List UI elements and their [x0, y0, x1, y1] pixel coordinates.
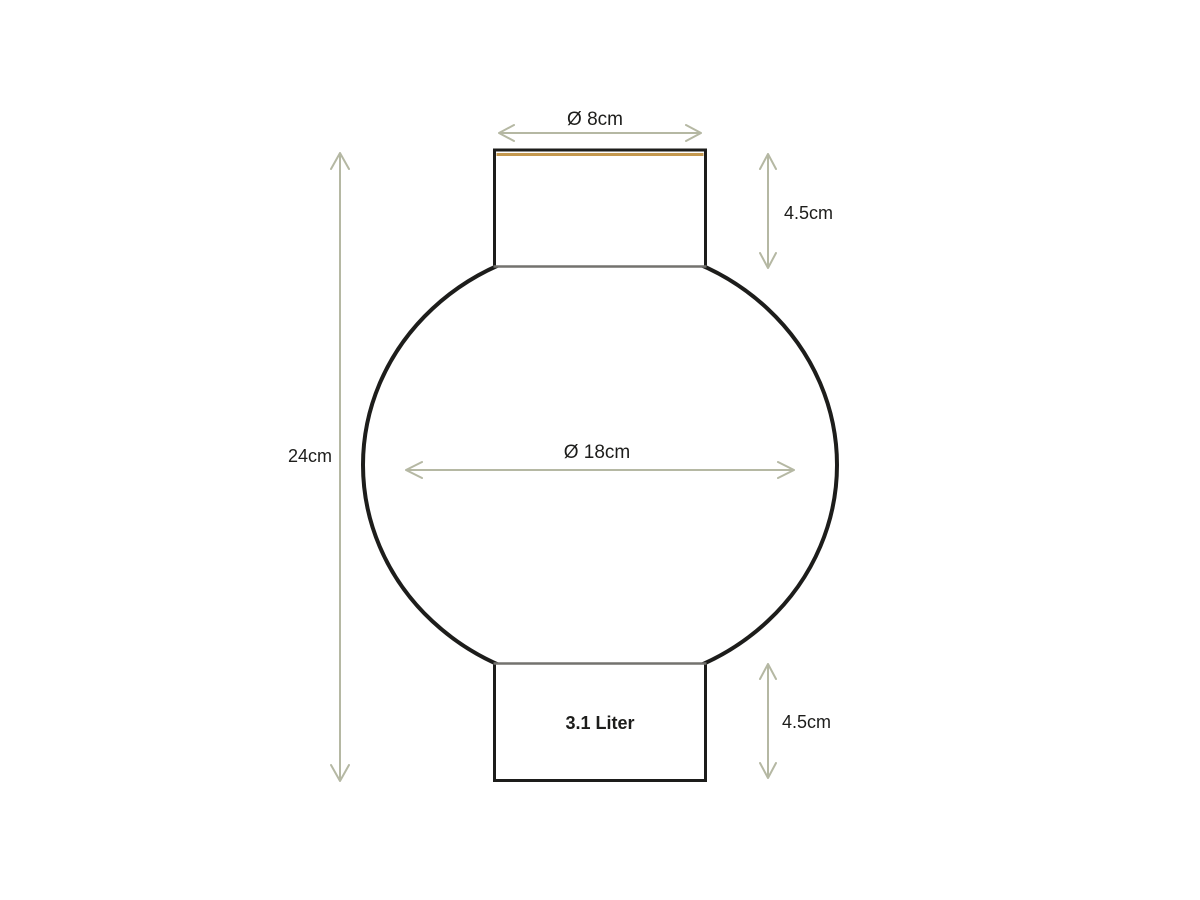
- label-neck-height: 4.5cm: [784, 203, 833, 223]
- label-top-diameter: Ø 8cm: [567, 109, 623, 130]
- label-base-height: 4.5cm: [782, 712, 831, 732]
- label-total-height: 24cm: [288, 446, 332, 466]
- vase-outline: [363, 149, 837, 781]
- vase-dimension-diagram: Ø 8cm 4.5cm 24cm Ø 18cm 4.5cm 3.1 Liter: [0, 0, 1200, 900]
- label-volume: 3.1 Liter: [565, 713, 634, 733]
- vase-body-outline: [363, 244, 837, 686]
- arrow-neck-height: [760, 154, 776, 268]
- diagram-canvas: Ø 8cm 4.5cm 24cm Ø 18cm 4.5cm 3.1 Liter: [0, 0, 1200, 900]
- vase-neck-fill: [495, 149, 706, 266]
- arrow-base-height: [760, 664, 776, 778]
- arrow-total-height: [331, 153, 349, 781]
- vase-neck: [494, 149, 707, 267]
- label-body-diameter: Ø 18cm: [564, 442, 631, 463]
